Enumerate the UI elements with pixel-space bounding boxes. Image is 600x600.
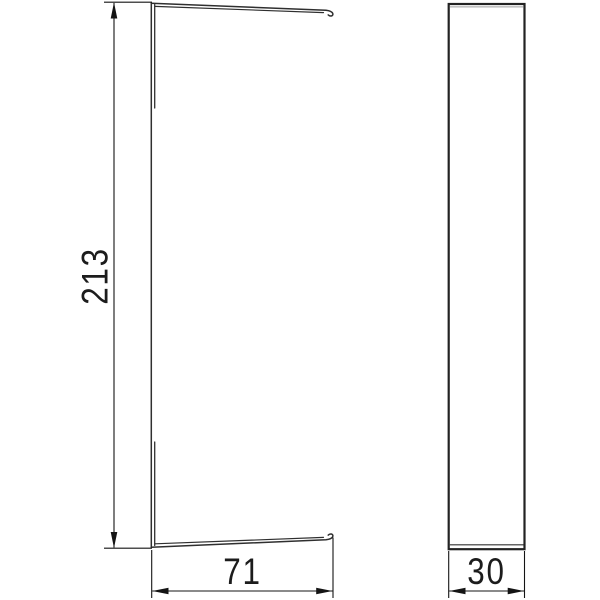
- dimension-71-arrow-left: [152, 588, 168, 595]
- dimension-30-label: 30: [467, 552, 505, 593]
- dimension-213-arrow-down: [111, 532, 118, 548]
- side-view-body: [449, 4, 525, 549]
- technical-drawing: 213 71 30: [0, 0, 600, 600]
- side-view: [449, 4, 525, 549]
- dimension-30-arrow-left: [449, 588, 465, 595]
- dimension-213-arrow-up: [111, 2, 118, 18]
- dimension-213-label: 213: [75, 247, 116, 305]
- front-view: [151, 3, 333, 547]
- dimension-71-label: 71: [223, 552, 261, 593]
- drawing-canvas: 213 71 30: [0, 0, 600, 600]
- dimension-71-arrow-right: [316, 588, 332, 595]
- dimension-30-arrow-right: [508, 588, 524, 595]
